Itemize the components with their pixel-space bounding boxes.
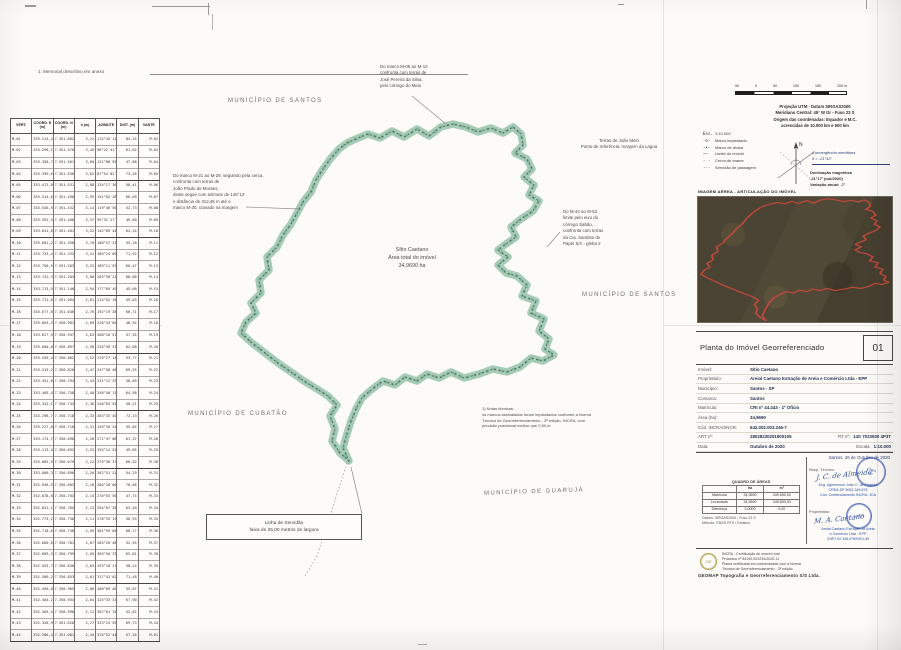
title-field-row: Imóvel:Sítio Caetano [696,365,893,375]
signature-divider [806,457,807,544]
convergence-note: Convergência meridiana δ = -21°43′ [812,150,890,165]
graphic-scale-bar [735,91,847,95]
registration-mark [418,644,427,645]
annotation-right: Do M-44 ao M-52 limite pelo eixo do córr… [563,209,655,247]
table-row: M-31352.946,537.350.683,992,18286°28′06″… [11,480,160,492]
scale-tick: 50 [773,84,777,88]
scale-tick: 150 [815,84,821,88]
title-block-footer: CAT INCRA - Certificação de imóvel rural… [696,548,893,580]
col-header: DIST. (m) [117,119,138,134]
table-row: Levantada34,9690349.690,00 [703,500,800,507]
sheet-note: 1. Memorial descritivo em anexo [38,69,104,74]
registration-mark [208,3,209,15]
sheet-number-box: 01 [863,335,893,361]
table-row: M-30353.000,347.350.690,752,20262°51′21″… [11,468,160,480]
annotation-bottom-notes: 1) Notas técnicas: os marcos assinalados… [482,406,670,429]
responsible-credentials: Eng. Agrimensor João C. de Almeida CREA-… [808,483,888,498]
title-fields: Imóvel:Sítio CaetanoProprietário:Areial … [696,365,893,452]
table-row: M-14353.713,947.351.140,462,94177°05′49″… [11,284,160,296]
col-header: h (m) [74,119,95,134]
registration-mark [25,5,36,7]
annotation-top: Do marco M-08 ao M-12 confronta com terr… [380,64,472,90]
legend-item: ——Limite do imóvel [703,151,765,158]
title-field-row: Matrícula:CRI nº 44.443 - 1º Ofício [696,404,893,414]
col-header: VÉRT. [11,119,32,134]
areas-table-panel: QUADRO DE ÁREAS ham²Matrícula34,9690349.… [702,479,800,527]
areas-table: ham²Matrícula34,9690349.690,00Levantada3… [702,485,800,514]
scale-tick: 100 [793,84,799,88]
table-row: M-26353.227,027.350.710,082,31249°20′24″… [11,422,160,434]
place-date-line: Santos, 26 de Outubro de 2020 [829,455,890,460]
title-row: Planta do Imóvel Georreferenciado 01 [696,331,893,365]
registration-mark [618,4,624,5]
col-header: ha [736,486,764,493]
leader-line [412,96,446,124]
table-row: M-32352.878,817.350.703,842,15270°55′50″… [11,491,160,503]
municipality-label-cubatao: MUNICÍPIO DE CUBATÃO [188,411,288,417]
municipality-label-santos-top: MUNICÍPIO DE SANTOS [228,98,323,104]
legend-item: -•-Marco de divisa [703,145,765,152]
inset-caption: IMAGEM AÉREA - ARTICULAÇÃO DO IMÓVEL [698,189,796,194]
col-header: COORD. N (m) [53,119,74,134]
table-row: M-41352.404,257.350.934,632,04325°33′31″… [11,595,160,607]
table-row: M-44352.286,427.351.081,062,44315°52′44″… [11,630,160,642]
areas-table-title: QUADRO DE ÁREAS [702,479,800,484]
table-row: Diferença0,00000,00 [703,507,800,514]
owner-credentials: Areial Caetano Extração de Areia e Comér… [808,527,888,542]
title-field-row: Município:Santos - SP [696,384,893,394]
svg-text:N: N [799,142,803,148]
table-row: M-24353.342,197.350.743,672,36240°03′55″… [11,399,160,411]
title-field-row: ART nº:28028230201900105RT nº:14S 702393… [696,433,893,443]
fold-line-horizontal-right [663,325,901,326]
declination-note: Declinação magnética -21°17′ (out/2020) … [810,170,890,189]
municipality-label-santos-right: MUNICÍPIO DE SANTOS [582,292,677,298]
leader-line [305,556,317,576]
coordinate-table: VÉRT.COORD. E (m)COORD. N (m)h (m)AZIMUT… [10,118,160,642]
table-row: M-38352.553,727.350.830,502,03293°18′17″… [11,561,160,573]
table-row: M-20353.549,477.350.862,392,52219°27′14″… [11,353,160,365]
table-row: M-40352.450,887.350.905,172,00300°09′46″… [11,584,160,596]
table-row: M-13353.741,377.351.203,583,08203°38′22″… [11,272,160,284]
signature-area: Santos, 26 de Outubro de 2020 QUADRO DE … [696,452,893,548]
cat-seal-icon: CAT [700,553,717,570]
legend-item: - -Cerca de arame [703,158,765,165]
registration-mark [212,14,213,30]
table-row: M-43352.320,947.351.020,402,27333°24′59″… [11,618,160,630]
table-row: M-27353.174,767.350.690,392,28271°47′08″… [11,434,160,446]
title-field-row: Comarca:Santos [696,394,893,404]
col-header: COORD. E (m) [32,119,53,134]
title-field-row: Data:Outubro de 2020Escala:1:10.000 [696,443,893,453]
title-field-row: Cód. INCRA/SNCR:642.002.003.246-7 [696,423,893,433]
table-row: M-19353.600,847.350.897,212,58235°49′33″… [11,342,160,354]
table-row: M-08353.592,307.351.406,153,3795°31′27″4… [11,215,160,227]
table-row: M-42352.365,517.350.990,292,12307°01′15″… [11,607,160,619]
table-row: M-36352.660,097.350.781,762,07285°26′48″… [11,538,160,550]
table-row: M-28353.113,417.350.692,302,25255°14′52″… [11,445,160,457]
areas-table-notes: Datum: SIRGAS2000 - Fuso 23 S Método: GN… [702,516,800,527]
table-row: M-10353.681,227.351.350,933,70108°57′31″… [11,238,160,250]
table-row: M-06353.514,637.351.490,272,95151°02′18″… [11,192,160,204]
inset-boundary-red [701,199,889,321]
table-row: M-11353.733,407.351.333,013,41166°24′09″… [11,249,160,261]
drawing-title: Planta do Imóvel Georreferenciado [696,343,854,352]
table-row: M-22353.451,067.350.794,972,43231°12′29″… [11,376,160,388]
legend-item: ···Servidão de passagem [703,165,765,172]
property-name-label: Sítio Caetano Área total do imóvel 34,96… [352,246,472,270]
table-row: M-17353.663,557.350.981,292,69226°43′05″… [11,318,160,330]
title-field-row: Proprietário:Areial Caetano Extração de … [696,375,893,385]
leader-line [547,232,560,247]
legend-item: -o-Marco implantado [703,138,765,145]
certification-lines: INCRA - Certificação de imóvel rural Pro… [722,552,887,572]
coordinate-table-panel: VÉRT.COORD. E (m)COORD. N (m)h (m)AZIMUT… [10,118,160,642]
scale-tick: 200 m [837,84,847,88]
table-row: Matrícula34,9690349.690,00 [703,493,800,500]
scanned-plan-sheet: 1. Memorial descritivo em anexo VÉRT.COO… [0,0,901,650]
table-row: M-39352.500,207.350.853,462,01317°42′02″… [11,572,160,584]
table-row: M-37352.609,377.350.795,632,05309°50′33″… [11,549,160,561]
company-line: GEOMAP Topografia e Georreferenciamento … [698,573,890,578]
graphic-scale-ticks: 50050100150200 m [735,84,847,88]
legend-item: Esc.1:10.000 [703,131,765,138]
scale-tick: 50 [735,84,739,88]
registration-mark [152,6,210,7]
table-row: M-05353.472,807.351.531,192,88134°17′36″… [11,180,160,192]
legend-list: Esc.1:10.000-o-Marco implantado-•-Marco … [703,131,765,172]
scale-tick: 0 [755,84,757,88]
annotation-left: Do marco M-21 ao M-29, seguindo pela cer… [173,173,293,211]
col-header: VANTE [138,119,159,134]
table-row: M-23353.405,437.350.758,122,40256°40′11″… [11,388,160,400]
col-header [703,486,737,493]
col-header: AZIMUTE [96,119,117,134]
table-row: M-34352.773,287.350.730,922,11278°33′19″… [11,515,160,527]
table-row: M-01353.214,457.351.602,113,21112°45′12″… [11,134,160,146]
inset-boundary-svg [698,197,892,322]
datum-projection-note: Projeção UTM - Datum SIRGAS2000 Meridian… [742,104,888,129]
table-row: M-25353.298,707.350.718,542,33263°35′40″… [11,411,160,423]
table-row: M-09353.641,857.351.401,863,52142°09′44″… [11,226,160,238]
table-row: M-29353.065,987.350.679,632,22279°36′37″… [11,457,160,469]
leader-lines [246,96,560,576]
col-header: m² [764,486,800,493]
table-row: M-33352.831,157.350.705,012,13294°07′35″… [11,503,160,515]
leader-line [317,463,347,556]
table-row: M-03353.358,747.351.561,303,60121°08′55″… [11,157,160,169]
servidao-box: Linha de Servidão faixa de 25,00 metros … [206,514,362,540]
table-row: M-18353.627,937.350.947,782,63208°16′57″… [11,330,160,342]
annotation-road-box: Terras de João Melo Ponto de referência:… [568,138,670,151]
table-row: M-16353.677,817.351.046,452,76192°19′38″… [11,307,160,319]
table-row: M-04353.399,617.351.536,523,0287°54′02″7… [11,169,160,181]
aerial-image-inset [697,196,893,323]
title-field-row: Área (ha):34,9690 [696,413,893,423]
table-row: M-21353.515,287.350.820,902,47247°58′46″… [11,365,160,377]
table-row: M-15353.711,607.351.094,862,81214°52′16″… [11,295,160,307]
table-row: M-07353.546,577.351.432,443,14119°46′50″… [11,203,160,215]
registration-mark [866,0,867,9]
municipality-label-guaruja: MUNICÍPIO DE GUARUJÁ [484,487,584,496]
title-block: Planta do Imóvel Georreferenciado 01 Imó… [696,331,893,571]
leader-line [351,467,362,514]
owner-label: Proprietário: [809,509,830,514]
table-row: M-02353.298,127.351.570,083,4598°22′41″6… [11,146,160,158]
table-row: M-35352.718,667.350.746,872,09301°59′04″… [11,526,160,538]
table-row: M-12353.750,967.351.263,283,25189°11′53″… [11,261,160,273]
